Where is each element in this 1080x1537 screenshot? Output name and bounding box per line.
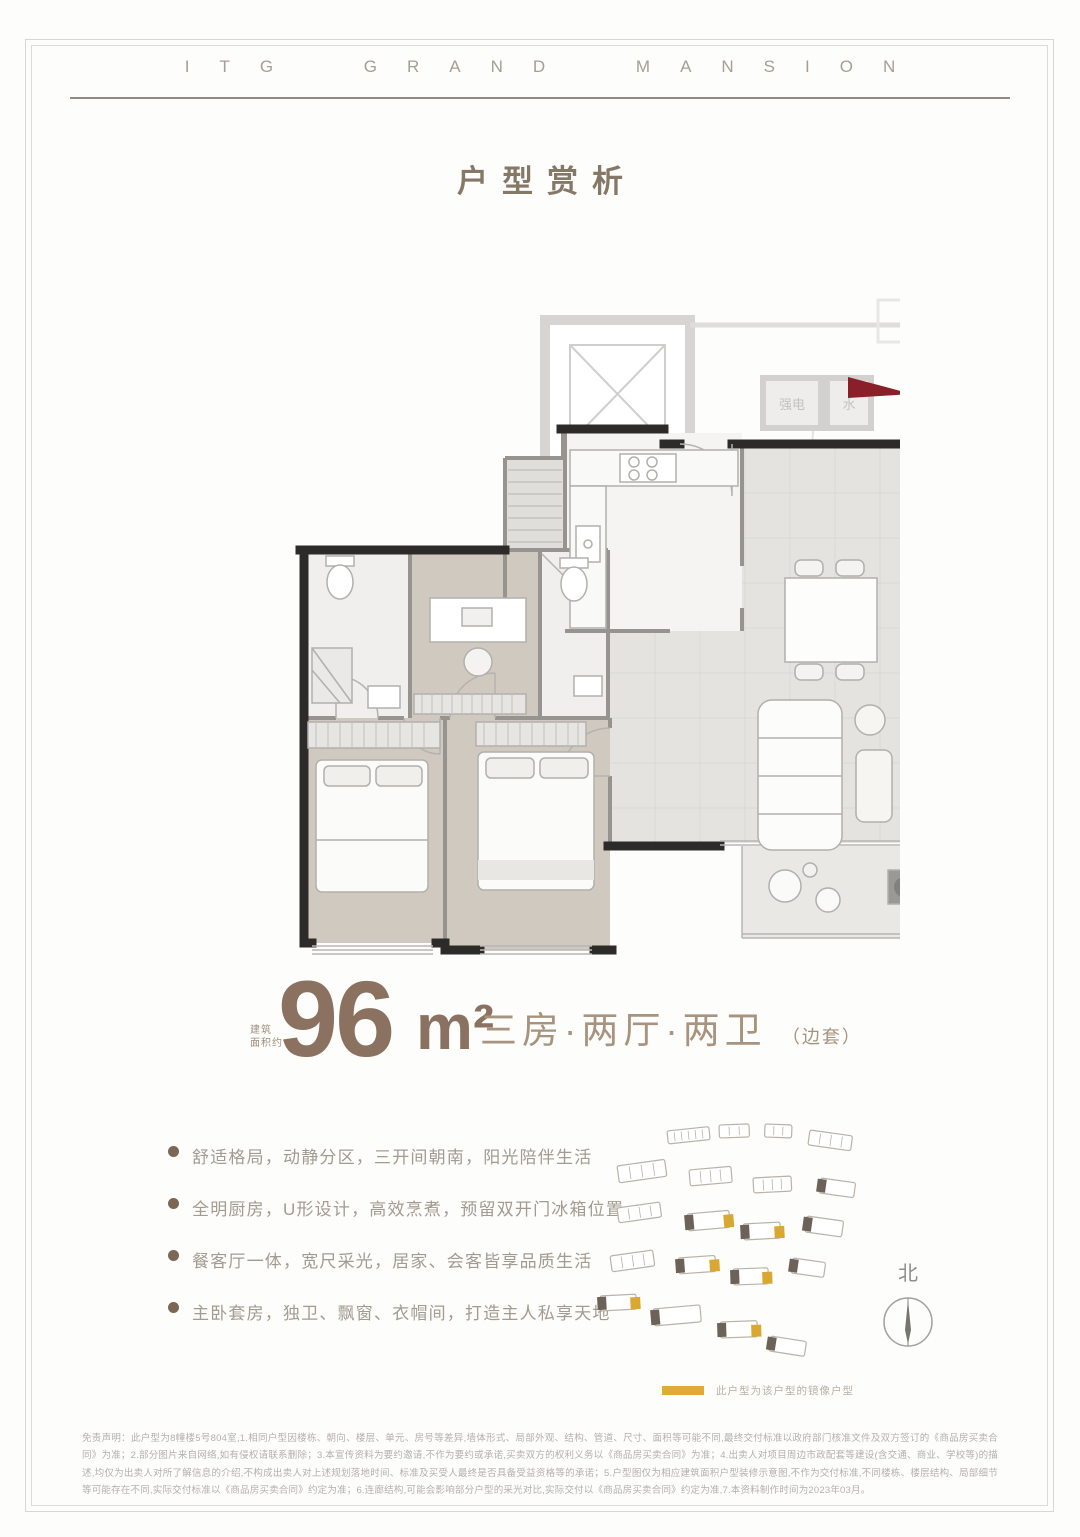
feature-item: 全明厨房，U形设计，高效烹煮，预留双开门冰箱位置: [168, 1195, 598, 1220]
north-label: 北: [898, 1262, 918, 1285]
bullet-dot-icon: [168, 1198, 179, 1209]
layout-spec: 三房·两厅·两卫 （边套）: [480, 1000, 862, 1054]
feature-item: 舒适格局，动静分区，三开间朝南，阳光陪伴生活: [168, 1143, 598, 1168]
dining-set: [785, 560, 877, 680]
area-spec-row: 建筑 面积约 96 m² 三房·两厅·两卫 （边套）: [248, 982, 888, 1092]
disclaimer-text: 免责声明：此户型为8幢楼5号804室,1.相同户型因楼栋、朝向、楼层、单元、房号…: [82, 1430, 998, 1500]
site-plan-legend: 此户型为该户型的镜像户型: [662, 1383, 854, 1398]
bullet-dot-icon: [168, 1146, 179, 1157]
page-title: 户型赏析: [0, 156, 1080, 201]
bullet-dot-icon: [168, 1250, 179, 1261]
master-bed: [308, 722, 440, 892]
bullet-dot-icon: [168, 1302, 179, 1313]
legend-gold-swatch: [662, 1386, 704, 1395]
utility-label-water: 水: [842, 397, 855, 412]
floor-plan-drawing: 强电 水: [280, 298, 900, 968]
floorplan-poster-page: ITG GRAND MANSION 户型赏析 强电 水: [0, 0, 1080, 1537]
site-plan-map: [595, 1106, 875, 1368]
layout-spec-note: （边套）: [782, 1027, 862, 1047]
feature-list: 舒适格局，动静分区，三开间朝南，阳光陪伴生活 全明厨房，U形设计，高效烹煮，预留…: [168, 1143, 598, 1351]
brand-divider: [70, 97, 1010, 99]
brand-title: ITG GRAND MANSION: [0, 57, 1080, 77]
area-value: 96: [278, 956, 392, 1081]
feature-item: 主卧套房，独卫、飘窗、衣帽间，打造主人私享天地: [168, 1299, 598, 1324]
north-compass-icon: 北: [877, 1258, 939, 1362]
legend-label: 此户型为该户型的镜像户型: [716, 1383, 854, 1398]
feature-item: 餐客厅一体，宽尺采光，居家、会客皆享品质生活: [168, 1247, 598, 1272]
utility-label-power: 强电: [779, 397, 805, 412]
floor-plan: 强电 水: [280, 298, 900, 968]
